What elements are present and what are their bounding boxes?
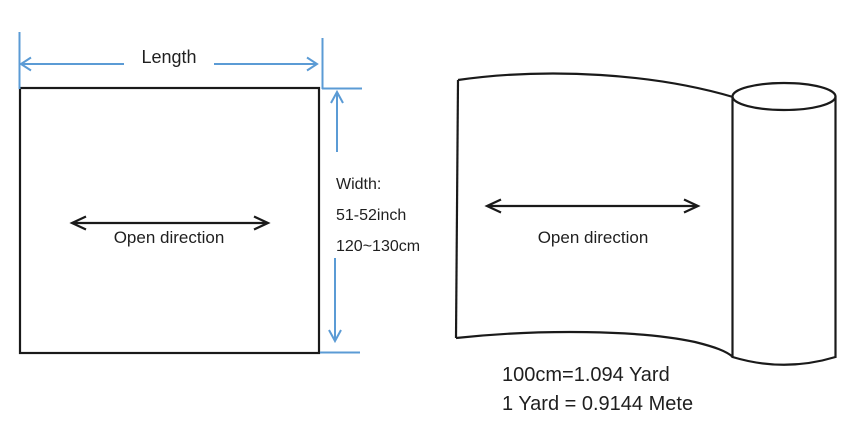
yard-conversion-note: 100cm=1.094 Yard 1 Yard = 0.9144 Mete [502, 361, 693, 419]
fabric-sheet-left-edge [456, 80, 458, 338]
roll-cylinder-body [733, 97, 836, 365]
width-spec-title: Width: [336, 169, 420, 200]
width-dim-arrow-down [329, 258, 341, 341]
fabric-sheet-bottom-edge [456, 332, 733, 357]
width-spec: Width: 51-52inch 120~130cm [336, 169, 420, 262]
width-spec-inches: 51-52inch [336, 200, 420, 231]
flat-sheet-rect [20, 88, 319, 353]
open-direction-label-right: Open direction [520, 228, 666, 248]
fabric-sheet-top-edge [458, 74, 733, 97]
length-label: Length [124, 46, 214, 68]
conversion-line-2: 1 Yard = 0.9144 Mete [502, 390, 693, 419]
width-dim-arrow-up [331, 92, 343, 152]
roll-top-ellipse [733, 83, 836, 110]
flat-sheet-group [20, 32, 363, 353]
open-direction-arrow-right-diagram [487, 200, 698, 213]
width-spec-centimeters: 120~130cm [336, 231, 420, 262]
conversion-line-1: 100cm=1.094 Yard [502, 361, 693, 390]
diagram-canvas: Length Width: 51-52inch 120~130cm Open d… [0, 0, 860, 424]
open-direction-label-left: Open direction [96, 228, 242, 248]
fabric-roll-group [456, 74, 836, 365]
